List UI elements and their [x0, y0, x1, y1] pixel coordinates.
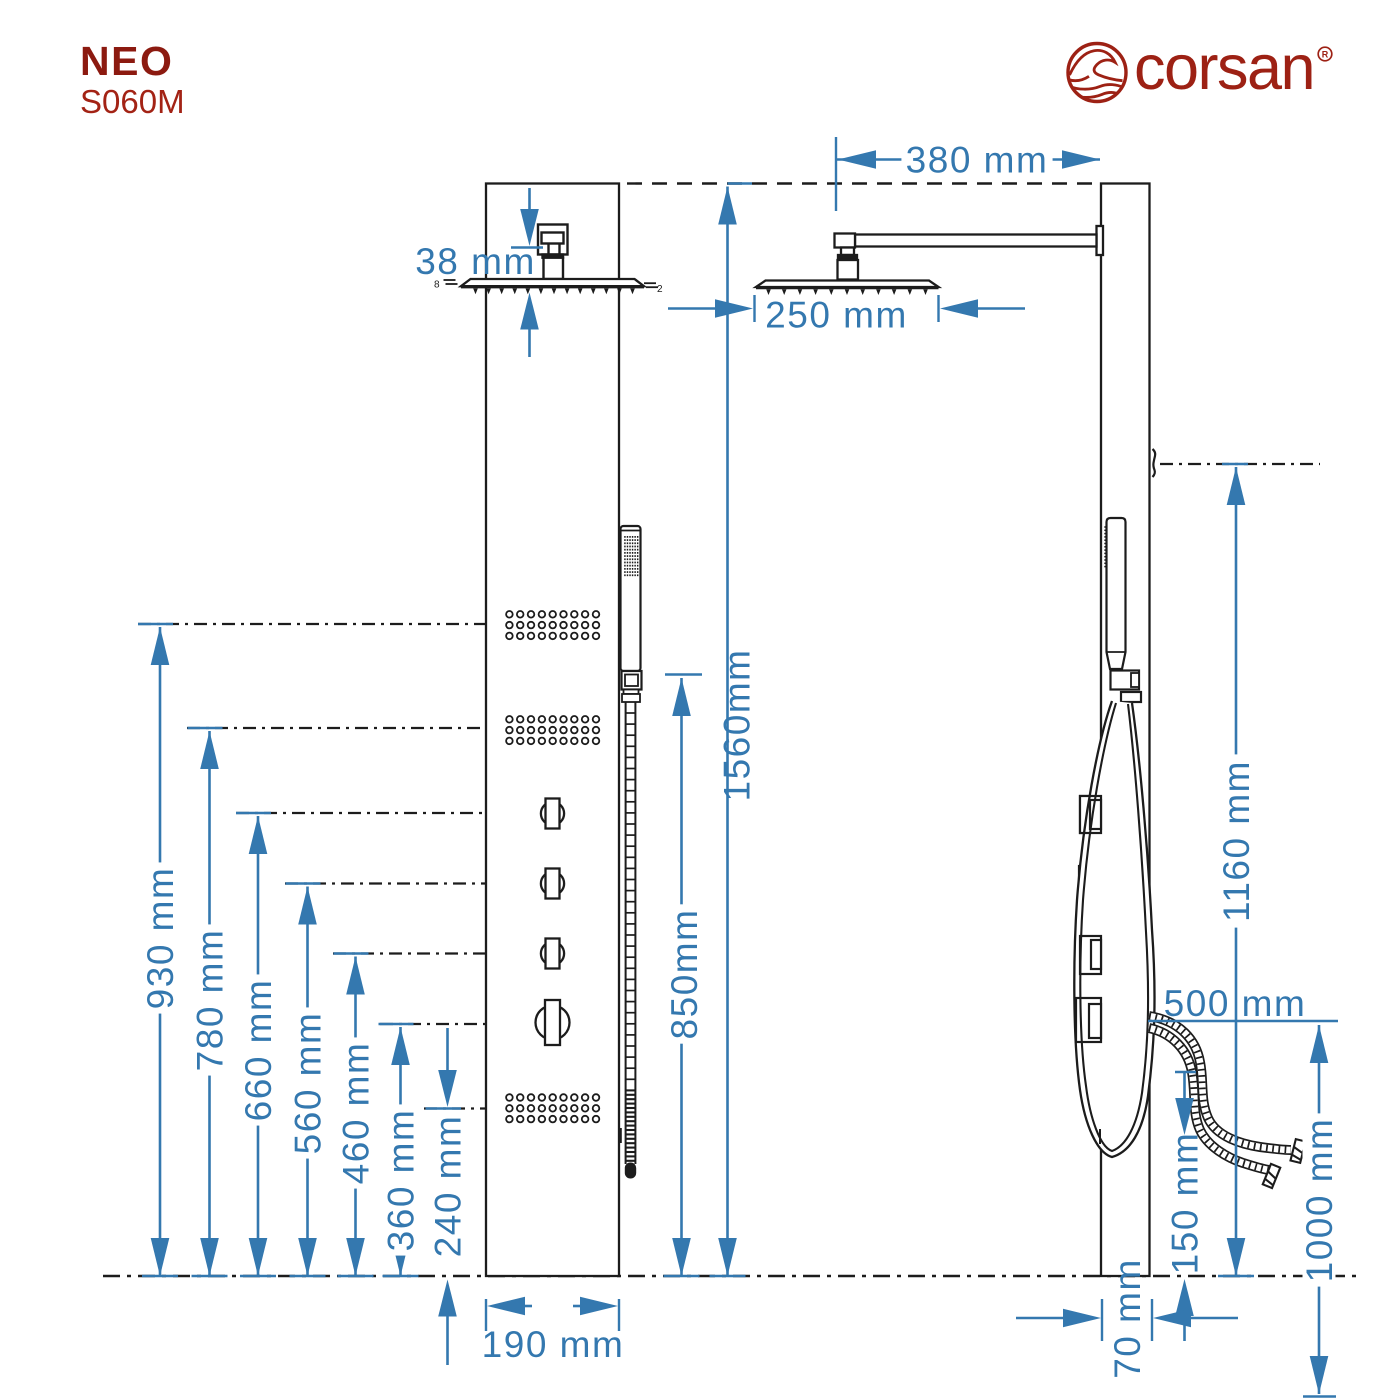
- svg-text:500 mm: 500 mm: [1164, 983, 1307, 1024]
- svg-text:70 mm: 70 mm: [1107, 1258, 1148, 1379]
- svg-text:R: R: [1322, 50, 1329, 60]
- svg-text:780 mm: 780 mm: [190, 929, 231, 1072]
- svg-text:380 mm: 380 mm: [906, 140, 1049, 181]
- svg-text:1560mm: 1560mm: [717, 649, 758, 802]
- svg-text:930 mm: 930 mm: [140, 867, 181, 1010]
- svg-text:2: 2: [657, 284, 663, 295]
- svg-text:660 mm: 660 mm: [238, 979, 279, 1122]
- svg-text:240 mm: 240 mm: [428, 1115, 469, 1258]
- svg-text:corsan: corsan: [1134, 33, 1314, 103]
- svg-text:190 mm: 190 mm: [482, 1324, 625, 1365]
- svg-text:560 mm: 560 mm: [288, 1012, 329, 1155]
- svg-text:S060M: S060M: [80, 83, 185, 120]
- svg-text:360 mm: 360 mm: [381, 1109, 422, 1252]
- svg-text:NEO: NEO: [80, 38, 173, 84]
- svg-text:460 mm: 460 mm: [336, 1042, 377, 1185]
- svg-text:150 mm: 150 mm: [1165, 1132, 1206, 1275]
- svg-text:1000 mm: 1000 mm: [1299, 1118, 1340, 1283]
- svg-text:38 mm: 38 mm: [415, 241, 536, 282]
- svg-text:1160 mm: 1160 mm: [1216, 760, 1257, 922]
- svg-text:250 mm: 250 mm: [765, 295, 908, 336]
- svg-text:850mm: 850mm: [664, 909, 705, 1040]
